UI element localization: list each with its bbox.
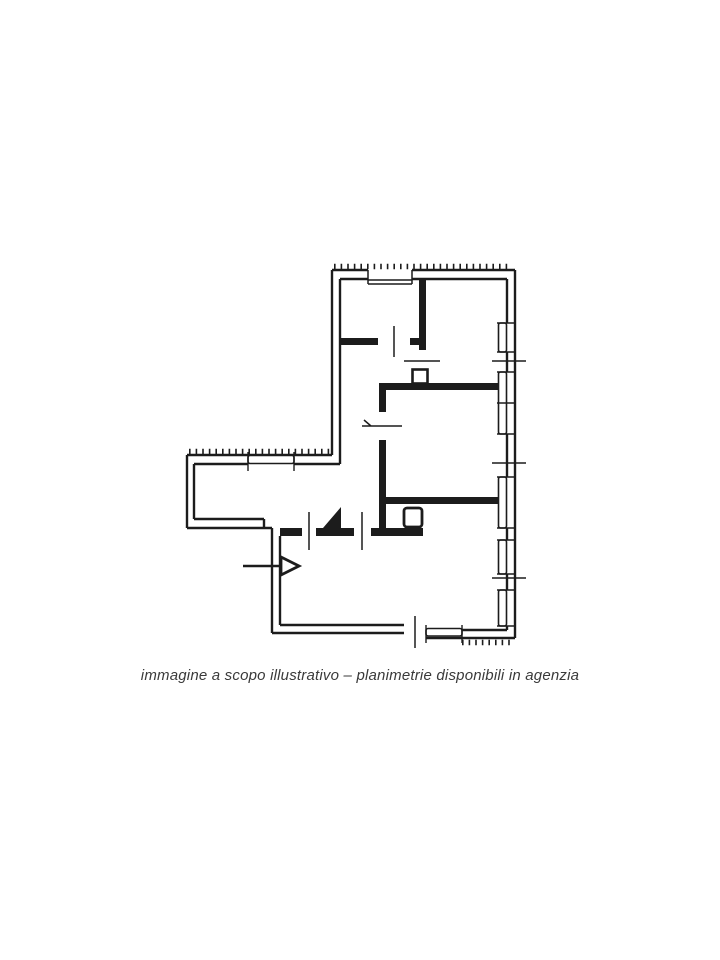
door-post-square bbox=[413, 370, 428, 384]
wing-west-wall bbox=[187, 455, 194, 528]
lower-room-north-wall-c bbox=[371, 528, 423, 536]
middle-room-north-wall bbox=[379, 383, 503, 390]
wall-south-left bbox=[272, 625, 404, 633]
lower-room-north-wall-b bbox=[316, 528, 354, 536]
wall-west-lower bbox=[272, 528, 280, 633]
middle-room-south-wall bbox=[379, 497, 503, 504]
window-east-4 bbox=[497, 540, 515, 574]
window-wing bbox=[248, 452, 294, 471]
window-east-3 bbox=[497, 477, 515, 528]
lower-room-north-wall-a bbox=[280, 528, 302, 536]
window-east-1 bbox=[497, 323, 515, 352]
stair-triangle bbox=[323, 507, 341, 528]
entrance-arrow-head bbox=[281, 557, 299, 575]
window-south bbox=[426, 625, 462, 643]
exterior-walls bbox=[187, 270, 515, 638]
floor-plan-svg bbox=[0, 0, 720, 960]
window-east-2 bbox=[497, 372, 515, 434]
interior-walls bbox=[280, 278, 503, 536]
north-door-threshold bbox=[368, 270, 412, 284]
illustrative-caption: immagine a scopo illustrativo – planimet… bbox=[0, 667, 720, 684]
listing-image-page: immagine a scopo illustrativo – planimet… bbox=[0, 0, 720, 960]
window-east-5 bbox=[497, 590, 515, 626]
wall-topleft-room-south-b bbox=[410, 338, 419, 345]
wall-end-post bbox=[404, 508, 422, 527]
corridor-east-wall-b bbox=[379, 440, 386, 536]
wing-south-wall bbox=[187, 519, 272, 528]
wall-topleft-room-south-a bbox=[340, 338, 378, 345]
door-tick-middle-room bbox=[362, 420, 402, 426]
divider-top-rooms bbox=[419, 278, 426, 350]
